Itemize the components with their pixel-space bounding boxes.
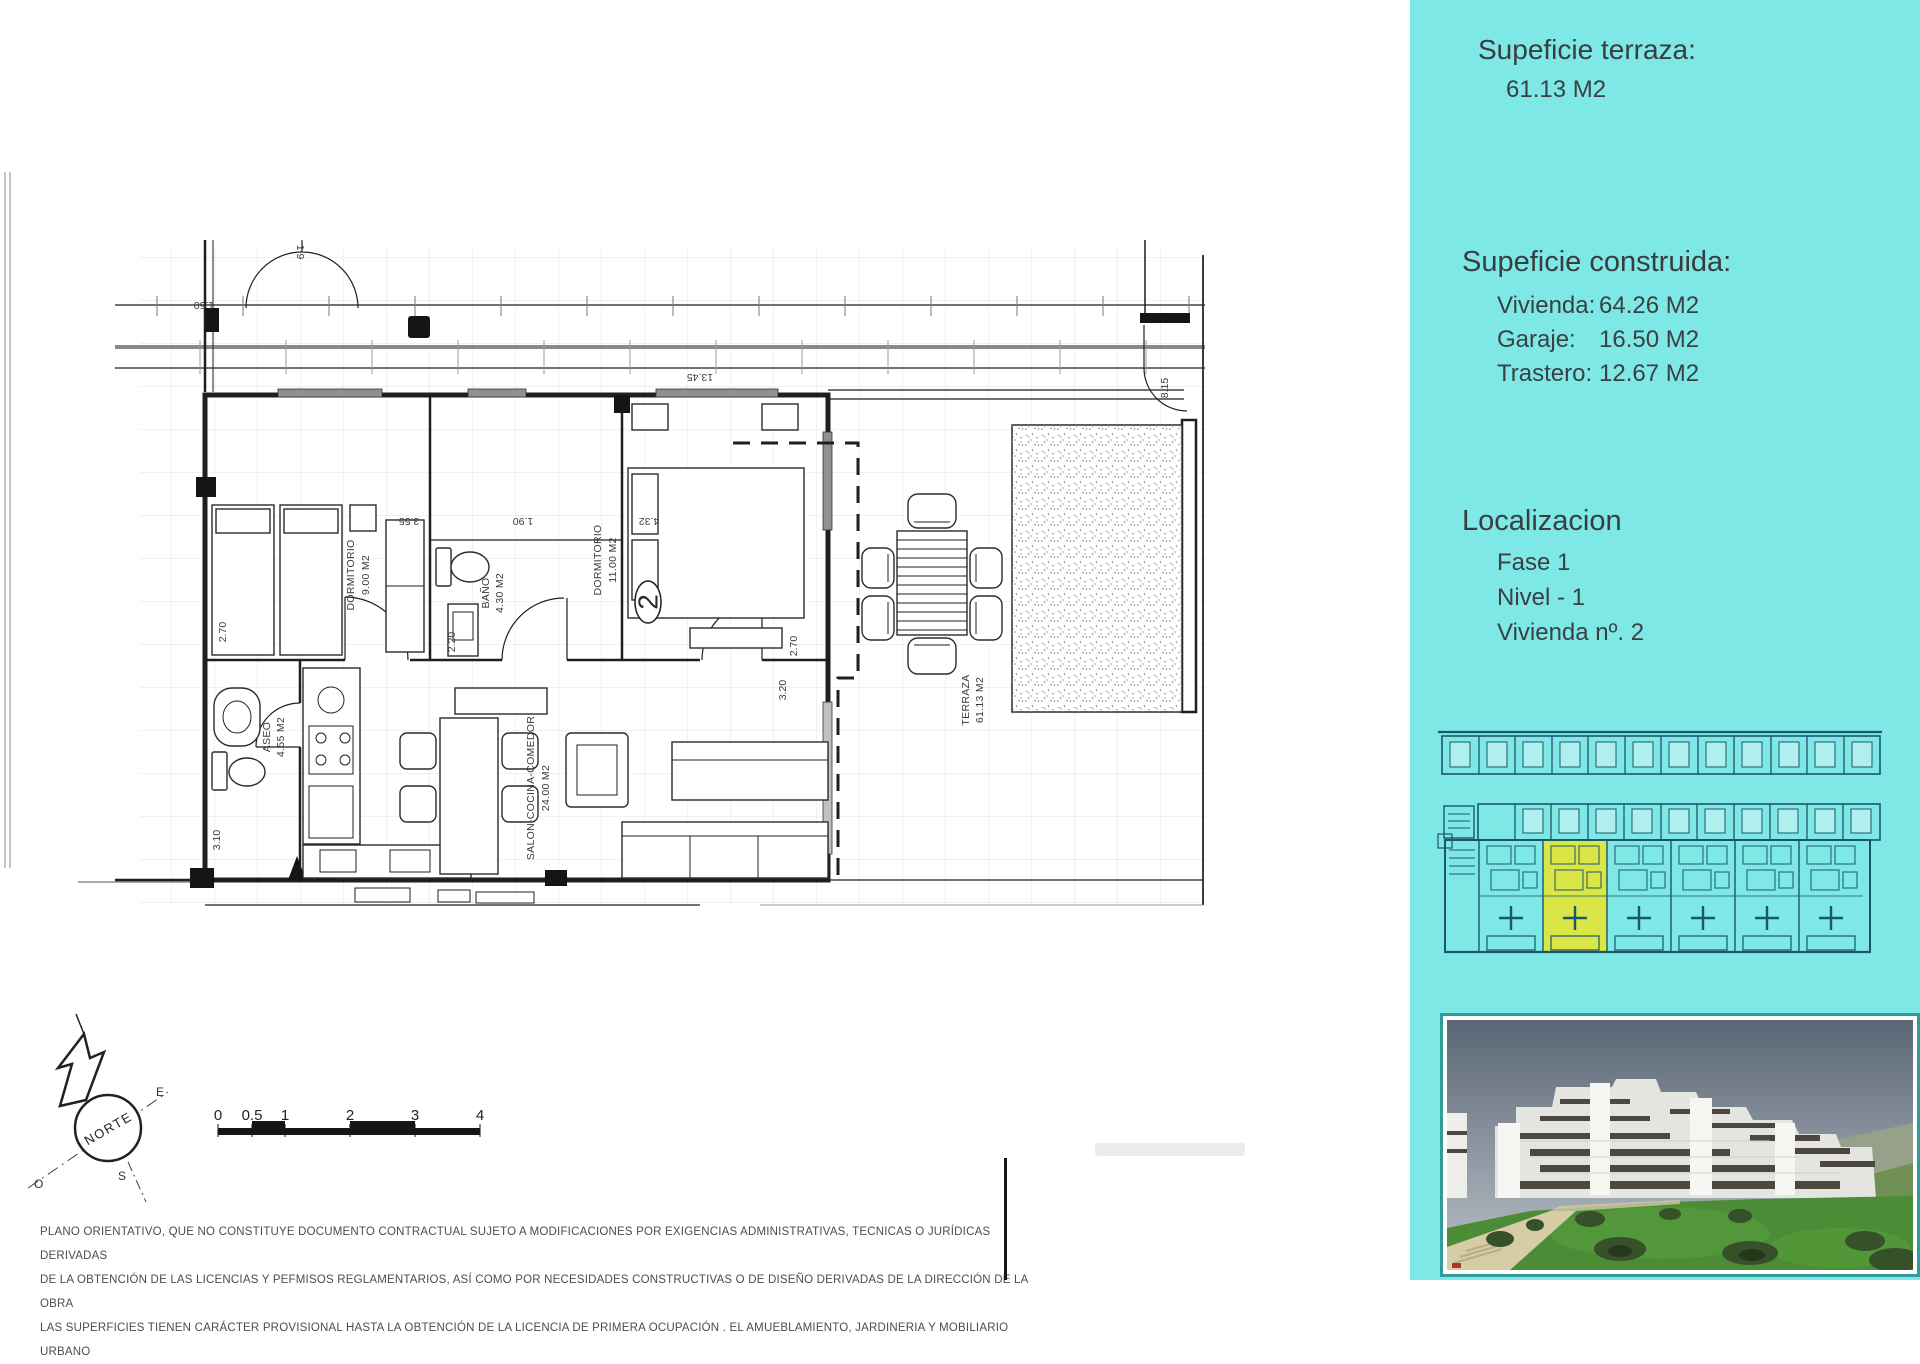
- svg-text:0: 0: [214, 1107, 222, 1124]
- room-label-dormitorio2: DORMITORIO: [592, 524, 604, 595]
- kitchen-counter-icon: [303, 668, 360, 844]
- page-border-left: [5, 172, 10, 868]
- scale-bar: 0 0.5 1 2 3 4: [214, 1107, 484, 1137]
- terrace-area-title: Supeficie terraza:: [1478, 34, 1696, 66]
- location-title: Localizacion: [1462, 505, 1622, 538]
- location-row-vivienda: Vivienda nº. 2: [1497, 619, 1644, 647]
- terrace-table-icon: [897, 531, 967, 635]
- terrace-area-value: 61.13 M2: [1506, 76, 1606, 104]
- built-row-garaje: Garaje:16.50 M2: [1497, 326, 1699, 354]
- svg-text:24.00 M2: 24.00 M2: [540, 765, 552, 811]
- svg-text:61.13 M2: 61.13 M2: [974, 677, 986, 723]
- svg-text:3.20: 3.20: [777, 680, 789, 701]
- south-label: S: [118, 1169, 126, 1183]
- svg-text:8.15: 8.15: [1159, 378, 1171, 399]
- built-value: 16.50 M2: [1599, 326, 1699, 353]
- dresser-icon: [690, 628, 782, 648]
- built-area-title: Supeficie construida:: [1462, 246, 1731, 279]
- location-row-nivel: Nivel - 1: [1497, 584, 1585, 612]
- built-label: Garaje:: [1497, 326, 1599, 354]
- floor-plan: 2 13.45 1.50 1.9 3.55 1.90 4.32 2.70 2.7…: [0, 0, 1410, 1280]
- room-label-terraza: TERRAZA: [960, 674, 972, 725]
- location-row-fase: Fase 1: [1497, 549, 1570, 577]
- sideboard-icon: [455, 688, 547, 714]
- stair-core: [1438, 806, 1474, 848]
- disclaimer: PLANO ORIENTATIVO, QUE NO CONSTITUYE DOC…: [40, 1220, 1030, 1364]
- svg-text:3.55: 3.55: [399, 515, 420, 527]
- terrace-chair-icon: [908, 638, 956, 674]
- terrace-chair-icon: [908, 494, 956, 528]
- nightstand-icon: [762, 404, 798, 430]
- room-label-aseo: ASEO: [261, 722, 273, 752]
- dining-table-icon: [440, 718, 498, 874]
- disclaimer-line-1: PLANO ORIENTATIVO, QUE NO CONSTITUYE DOC…: [40, 1220, 1030, 1268]
- terrace-chair-icon: [970, 596, 1002, 640]
- site-plan: [1436, 726, 1884, 968]
- info-panel: Supeficie terraza: 61.13 M2 Supeficie co…: [1410, 0, 1920, 1280]
- svg-text:9.00 M2: 9.00 M2: [360, 555, 372, 595]
- terrace-chair-icon: [862, 596, 894, 640]
- svg-text:1.9: 1.9: [294, 245, 306, 260]
- built-row-vivienda: Vivienda:64.26 M2: [1497, 292, 1699, 320]
- built-row-trastero: Trastero:12.67 M2: [1497, 360, 1699, 388]
- built-value: 64.26 M2: [1599, 292, 1699, 319]
- svg-text:4: 4: [476, 1107, 484, 1124]
- svg-text:2.20: 2.20: [446, 632, 458, 653]
- svg-text:2.70: 2.70: [217, 622, 229, 643]
- toilet-icon: [451, 552, 489, 582]
- footer-divider-line: [1004, 1158, 1007, 1280]
- svg-text:3.10: 3.10: [211, 830, 223, 851]
- svg-text:1.90: 1.90: [513, 515, 534, 527]
- room-label-dormitorio1: DORMITORIO: [345, 539, 357, 610]
- terrace-chair-icon: [862, 548, 894, 588]
- svg-text:13.45: 13.45: [687, 371, 713, 383]
- sofa-icon: [672, 742, 828, 800]
- svg-text:4.55 M2: 4.55 M2: [275, 717, 287, 757]
- terrace-chair-icon: [970, 548, 1002, 588]
- building-render-photo: [1440, 1013, 1920, 1277]
- svg-text:4.30 M2: 4.30 M2: [494, 573, 506, 613]
- svg-text:2.70: 2.70: [788, 636, 800, 657]
- svg-text:11.00 M2: 11.00 M2: [607, 537, 619, 582]
- planter-bed: [1012, 425, 1182, 712]
- toilet-icon: [229, 758, 265, 786]
- brochure-page: { "colors": { "sidebar_bg": "#7de8e6", "…: [0, 0, 1920, 1280]
- unit-number: 2: [633, 594, 664, 610]
- svg-text:1.50: 1.50: [194, 299, 215, 311]
- built-value: 12.67 M2: [1599, 360, 1699, 387]
- svg-text:4.32: 4.32: [639, 515, 660, 527]
- nightstand-icon: [350, 505, 376, 531]
- east-label: E: [156, 1085, 164, 1099]
- north-arrow-icon: NORTE E O S: [28, 1014, 168, 1202]
- sofa-icon: [622, 822, 828, 878]
- chair-icon: [400, 786, 436, 822]
- chair-icon: [400, 733, 436, 769]
- built-label: Trastero:: [1497, 360, 1599, 388]
- aseo-fixtures: [212, 688, 265, 790]
- washbasin-icon: [214, 688, 260, 746]
- armchair-icon: [566, 733, 628, 807]
- disclaimer-line-2: DE LA OBTENCIÓN DE LAS LICENCIAS Y PEFMI…: [40, 1268, 1030, 1316]
- nightstand-icon: [632, 404, 668, 430]
- room-label-bano: BAÑO: [479, 578, 492, 609]
- disclaimer-line-3: LAS SUPERFICIES TIENEN CARÁCTER PROVISIO…: [40, 1316, 1030, 1364]
- built-label: Vivienda:: [1497, 292, 1599, 320]
- faded-stamp: [1095, 1143, 1245, 1156]
- west-label: O: [34, 1177, 43, 1191]
- flower-accent: [1452, 1263, 1461, 1268]
- dorm1-furniture: [212, 505, 424, 655]
- room-label-salon: SALON-COCINA-COMEDOR: [525, 716, 537, 860]
